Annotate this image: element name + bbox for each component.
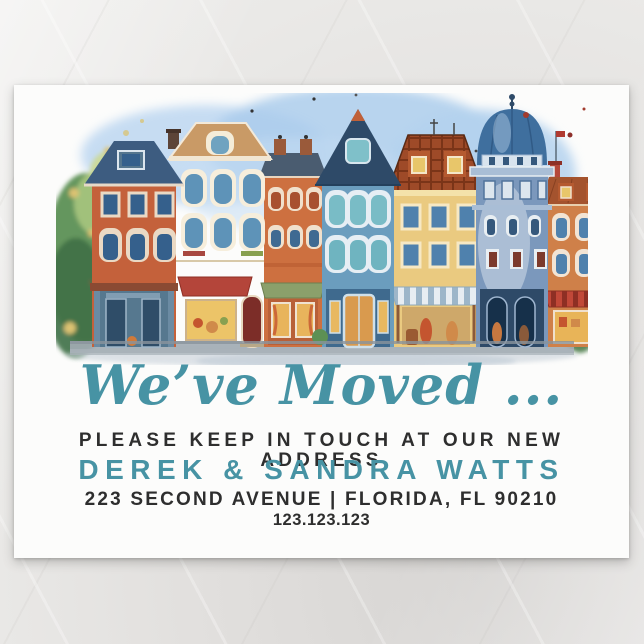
- headline-script: We’ve Moved ...: [14, 343, 629, 427]
- townhouses-illustration: [56, 93, 588, 365]
- names-line: DEREK & SANDRA WATTS: [14, 453, 629, 487]
- phone-line: 123.123.123: [14, 511, 629, 529]
- building-yellow-lattice: [387, 119, 485, 347]
- building-orange-narrow: [259, 135, 327, 347]
- building-terracotta-left: [84, 141, 184, 347]
- moving-announcement-card: We’ve Moved ... PLEASE KEEP IN TOUCH AT …: [14, 85, 629, 558]
- building-cream-facade: [176, 159, 264, 347]
- building-blue-dome: [470, 94, 554, 347]
- address-line: 223 SECOND AVENUE | FLORIDA, FL 90210: [14, 489, 629, 511]
